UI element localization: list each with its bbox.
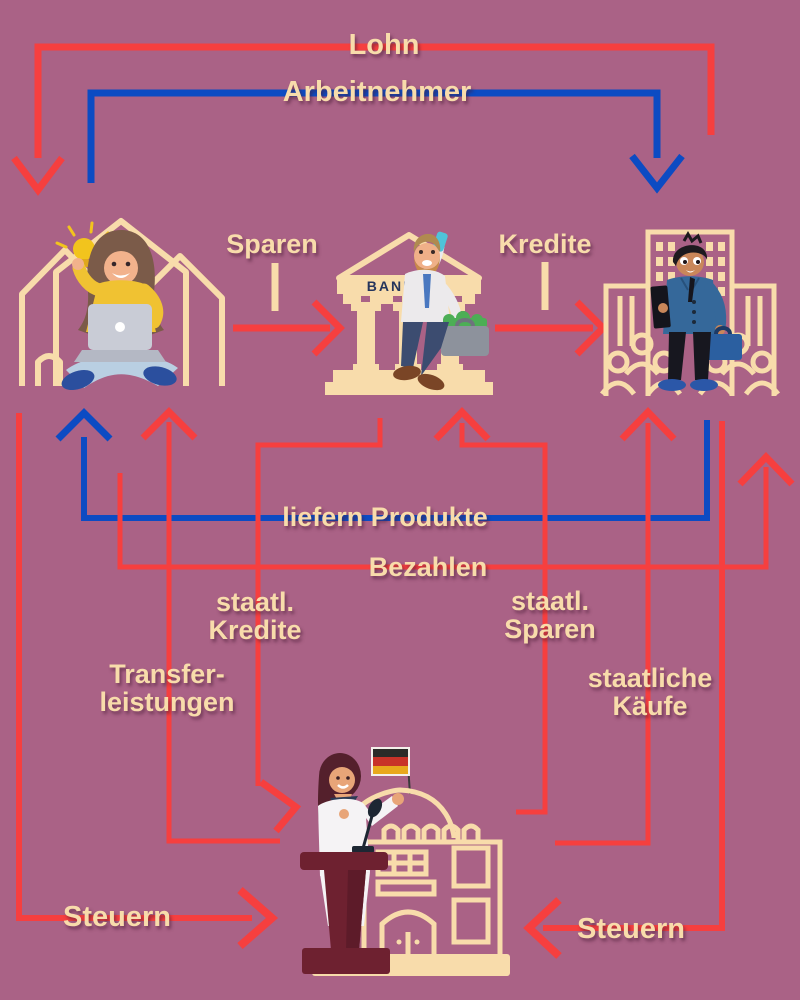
briefcase (706, 334, 742, 360)
money-briefcase (441, 326, 489, 356)
label-staatl-sparen: staatl. Sparen (504, 587, 596, 643)
label-transferleistungen: Transfer- leistungen (99, 660, 234, 716)
german-flag-icon (371, 747, 410, 794)
company-crowd (602, 335, 778, 394)
household-illustration (8, 208, 236, 400)
diagram-canvas: BANK (0, 0, 800, 1000)
lohn-arrowhead (14, 158, 62, 190)
label-bezahlen: Bezahlen (369, 553, 488, 581)
bank-illustration: BANK (325, 220, 493, 398)
company-illustration (598, 226, 782, 400)
label-steuern-right: Steuern (577, 915, 685, 943)
label-arbeitnehmer: Arbeitnehmer (283, 78, 472, 106)
liefern-produkte-arrowhead (58, 413, 110, 439)
label-steuern-left: Steuern (63, 903, 171, 931)
label-sparen: Sparen (226, 230, 318, 258)
label-liefern-produkte: liefern Produkte (282, 503, 488, 531)
label-staatliche-kaeufe: staatliche Käufe (588, 664, 713, 720)
label-staatl-kredite: staatl. Kredite (208, 588, 301, 644)
government-illustration (286, 740, 514, 990)
label-kredite: Kredite (498, 230, 591, 258)
label-lohn: Lohn (349, 31, 420, 59)
arbeitnehmer-arrowhead (632, 156, 682, 188)
